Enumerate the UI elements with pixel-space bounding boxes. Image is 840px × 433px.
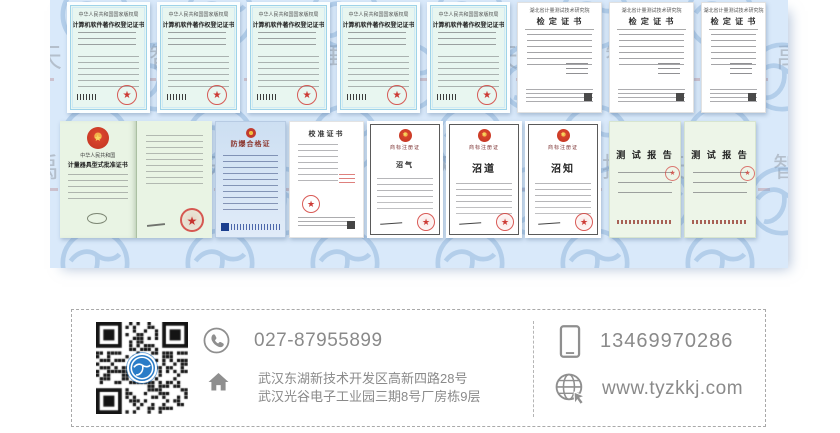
text-lines <box>618 89 685 102</box>
signature-block <box>146 223 164 227</box>
barcode <box>77 94 97 100</box>
trademark-name: 沼知 <box>529 160 597 175</box>
national-emblem-icon <box>478 129 491 142</box>
barcode <box>347 221 355 229</box>
certificate-title: 测 试 报 告 <box>685 148 755 161</box>
booklet-left-page: 中华人民共和国 计量器具型式批准证书 <box>60 121 137 238</box>
text-lines <box>298 144 338 182</box>
certificate-title: 商标注册证 <box>371 144 439 151</box>
barcode <box>584 93 592 101</box>
certificate-frame: 商标注册证 沼气 <box>370 124 440 235</box>
certificate-title: 检 定 证 书 <box>518 16 601 27</box>
text-lines <box>78 32 136 49</box>
certificate-issuer: 湖北省计量测试技术研究院 <box>610 7 693 14</box>
certificate-country: 中华人民共和国 <box>60 152 136 159</box>
barcode <box>676 93 684 101</box>
certificate-title: 计算机软件著作权登记证书 <box>161 20 236 29</box>
website-link[interactable]: www.tyzkkj.com <box>602 378 743 400</box>
mobile-row: 13469970286 <box>559 325 733 358</box>
signature-block <box>459 216 481 225</box>
phone-number: 027-87955899 <box>254 330 383 352</box>
red-star-seal-icon <box>117 85 137 105</box>
address-text: 武汉东湖新技术开发区高新四路28号 武汉光谷电子工业园三期8号厂房栋9层 <box>258 370 480 406</box>
divider <box>709 29 758 30</box>
address-line-1: 武汉东湖新技术开发区高新四路28号 <box>258 371 467 386</box>
certificate-issuer: 中华人民共和国国家版权局 <box>161 11 236 18</box>
text-lines <box>68 174 128 200</box>
certificate-frame: 商标注册证 沼道 <box>449 124 519 235</box>
certificate-issuer: 中华人民共和国国家版权局 <box>251 11 326 18</box>
red-star-seal-icon <box>575 213 593 231</box>
certificate-trademark[interactable]: 商标注册证 沼气 <box>367 121 443 238</box>
certificate-issuer: 中华人民共和国国家版权局 <box>71 11 146 18</box>
certificate-frame: 中华人民共和国国家版权局 计算机软件著作权登记证书 <box>250 5 327 110</box>
certificate-verification[interactable]: 湖北省计量测试技术研究院 检 定 证 书 <box>701 2 766 113</box>
certificate-frame: 商标注册证 沼知 <box>528 124 598 235</box>
page: 天禹智控天禹智控天禹智控天禹智控 天禹智控天禹智控天禹智控天禹智控 中华人民共和… <box>0 0 840 433</box>
text-lines <box>456 183 512 203</box>
certificate-title: 检 定 证 书 <box>610 16 693 27</box>
certificate-frame: 中华人民共和国国家版权局 计算机软件著作权登记证书 <box>340 5 417 110</box>
trademark-name: 沼道 <box>450 160 518 175</box>
certificate-frame: 中华人民共和国国家版权局 计算机软件著作权登记证书 <box>430 5 507 110</box>
text-lines <box>223 155 278 211</box>
certificate-test-report[interactable]: 测 试 报 告 <box>609 121 681 238</box>
mobile-phone-icon <box>559 325 581 358</box>
text-lines <box>618 171 672 201</box>
certificate-issuer: 湖北省计量测试技术研究院 <box>702 7 765 14</box>
red-text-lines <box>617 220 673 224</box>
red-star-seal-icon <box>740 166 755 181</box>
national-emblem-icon <box>399 129 412 142</box>
home-icon <box>206 370 231 394</box>
red-text-lines <box>339 174 355 184</box>
text-lines <box>146 135 204 185</box>
signature-block <box>566 63 588 77</box>
certificate-frame: 中华人民共和国国家版权局 计算机软件著作权登记证书 <box>70 5 147 110</box>
certificate-title: 计算机软件著作权登记证书 <box>71 20 146 29</box>
agency-emblem-icon <box>246 128 256 138</box>
address-line-2: 武汉光谷电子工业园三期8号厂房栋9层 <box>258 389 480 404</box>
text-lines <box>619 34 684 66</box>
address-row: 武汉东湖新技术开发区高新四路28号 武汉光谷电子工业园三期8号厂房栋9层 <box>206 370 480 406</box>
certificate-row-top: 中华人民共和国国家版权局 计算机软件著作权登记证书 中华人民共和国国家版权局 计… <box>67 2 766 113</box>
certificate-pattern-approval[interactable]: 中华人民共和国 计量器具型式批准证书 <box>60 121 212 238</box>
red-star-seal-icon <box>477 85 497 105</box>
certificate-software-copyright[interactable]: 中华人民共和国国家版权局 计算机软件著作权登记证书 <box>337 2 420 113</box>
certificate-gallery-panel: 天禹智控天禹智控天禹智控天禹智控 天禹智控天禹智控天禹智控天禹智控 中华人民共和… <box>50 0 788 268</box>
phone-row: 027-87955899 <box>203 327 383 354</box>
certificate-title: 商标注册证 <box>450 144 518 151</box>
text-lines <box>377 178 433 198</box>
national-emblem-icon <box>87 127 109 149</box>
red-star-seal-icon <box>180 208 204 232</box>
barcode <box>257 94 277 100</box>
certificate-software-copyright[interactable]: 中华人民共和国国家版权局 计算机软件著作权登记证书 <box>427 2 510 113</box>
globe-icon <box>554 372 587 405</box>
certificate-verification[interactable]: 湖北省计量测试技术研究院 检 定 证 书 <box>517 2 602 113</box>
text-lines <box>438 32 496 49</box>
contact-section: 027-87955899 武汉东湖新技术开发区高新四路28号 武汉光谷电子工业园… <box>71 309 766 427</box>
divider <box>525 29 594 30</box>
certificate-title: 计算机软件著作权登记证书 <box>431 20 506 29</box>
certificate-software-copyright[interactable]: 中华人民共和国国家版权局 计算机软件著作权登记证书 <box>157 2 240 113</box>
certificate-software-copyright[interactable]: 中华人民共和国国家版权局 计算机软件著作权登记证书 <box>67 2 150 113</box>
national-emblem-icon <box>557 129 570 142</box>
red-star-seal-icon <box>302 195 320 213</box>
text-lines <box>258 32 316 49</box>
red-text-lines <box>692 220 748 224</box>
certificate-issuer: 湖北省计量测试技术研究院 <box>518 7 601 14</box>
website-row: www.tyzkkj.com <box>554 372 743 405</box>
certificate-verification[interactable]: 湖北省计量测试技术研究院 检 定 证 书 <box>609 2 694 113</box>
certificate-test-report[interactable]: 测 试 报 告 <box>684 121 756 238</box>
certificate-trademark[interactable]: 商标注册证 沼知 <box>525 121 601 238</box>
certificate-title: 防爆合格证 <box>216 139 285 149</box>
certificate-software-copyright[interactable]: 中华人民共和国国家版权局 计算机软件著作权登记证书 <box>247 2 330 113</box>
barcode <box>347 94 367 100</box>
red-star-seal-icon <box>207 85 227 105</box>
certificate-issuer: 中华人民共和国国家版权局 <box>431 11 506 18</box>
certificate-title: 测 试 报 告 <box>610 148 680 161</box>
red-star-seal-icon <box>417 213 435 231</box>
divider <box>617 29 686 30</box>
barcode <box>748 93 756 101</box>
barcode <box>167 94 187 100</box>
company-logo-icon <box>127 353 157 383</box>
vertical-divider <box>533 321 534 417</box>
text-lines <box>535 183 591 203</box>
text-lines <box>711 34 756 66</box>
signature-block <box>730 63 752 77</box>
certificate-trademark[interactable]: 商标注册证 沼道 <box>446 121 522 238</box>
red-star-seal-icon <box>297 85 317 105</box>
mobile-number: 13469970286 <box>600 330 733 353</box>
oval-stamp <box>87 213 107 224</box>
certificate-title: 计量器具型式批准证书 <box>60 160 136 169</box>
text-lines <box>527 34 592 66</box>
signature-block <box>380 216 402 225</box>
certificate-row-bottom: 中华人民共和国 计量器具型式批准证书 防爆合格证 校 <box>60 121 756 238</box>
text-lines <box>377 202 433 212</box>
barcode <box>437 94 457 100</box>
certificate-title: 校准证书 <box>290 129 363 139</box>
certificate-title: 检 定 证 书 <box>702 16 765 27</box>
signature-block <box>538 216 560 225</box>
certificate-title: 计算机软件著作权登记证书 <box>251 20 326 29</box>
certificate-title: 商标注册证 <box>529 144 597 151</box>
certificate-title: 计算机软件著作权登记证书 <box>341 20 416 29</box>
certificate-issuer: 中华人民共和国国家版权局 <box>341 11 416 18</box>
text-lines <box>526 89 593 102</box>
certificate-explosion-proof[interactable]: 防爆合格证 <box>215 121 286 238</box>
booklet-right-page <box>137 121 213 238</box>
red-star-seal-icon <box>665 166 680 181</box>
signature-block <box>658 63 680 77</box>
footer-logo-bar <box>221 223 280 231</box>
phone-icon <box>203 327 230 354</box>
red-star-seal-icon <box>496 213 514 231</box>
certificate-frame: 中华人民共和国国家版权局 计算机软件著作权登记证书 <box>160 5 237 110</box>
red-star-seal-icon <box>387 85 407 105</box>
qr-code <box>96 322 188 414</box>
text-lines <box>693 171 747 201</box>
certificate-calibration[interactable]: 校准证书 <box>289 121 364 238</box>
text-lines <box>348 32 406 49</box>
trademark-name: 沼气 <box>371 160 439 170</box>
text-lines <box>168 32 226 49</box>
